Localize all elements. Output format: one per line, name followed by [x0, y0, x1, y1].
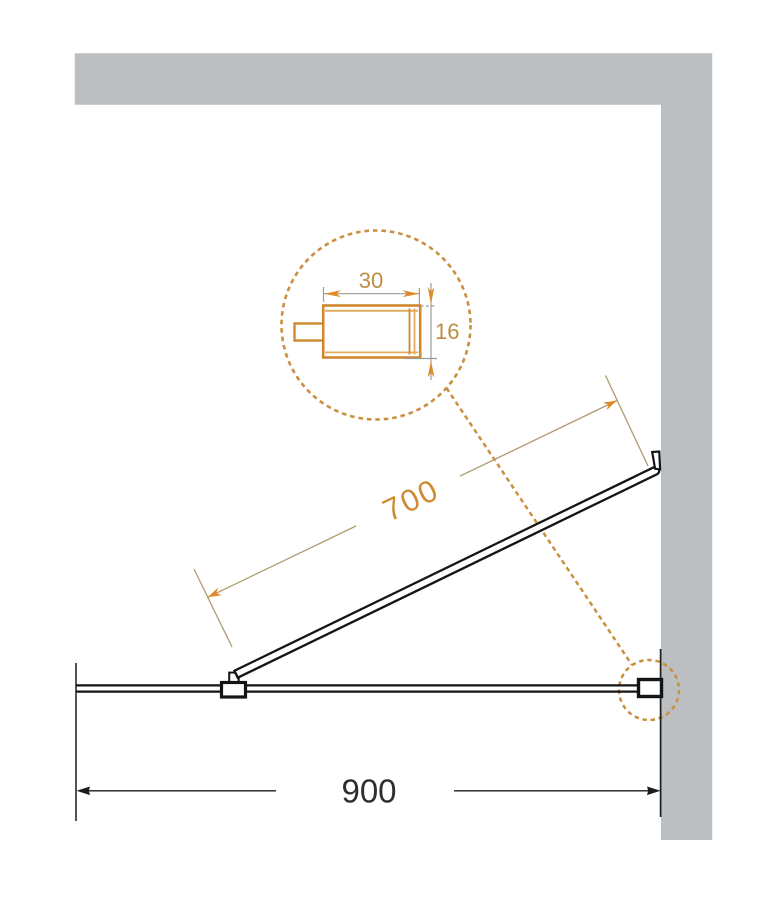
- svg-text:900: 900: [341, 773, 396, 810]
- svg-text:16: 16: [435, 319, 459, 344]
- svg-text:30: 30: [359, 268, 383, 293]
